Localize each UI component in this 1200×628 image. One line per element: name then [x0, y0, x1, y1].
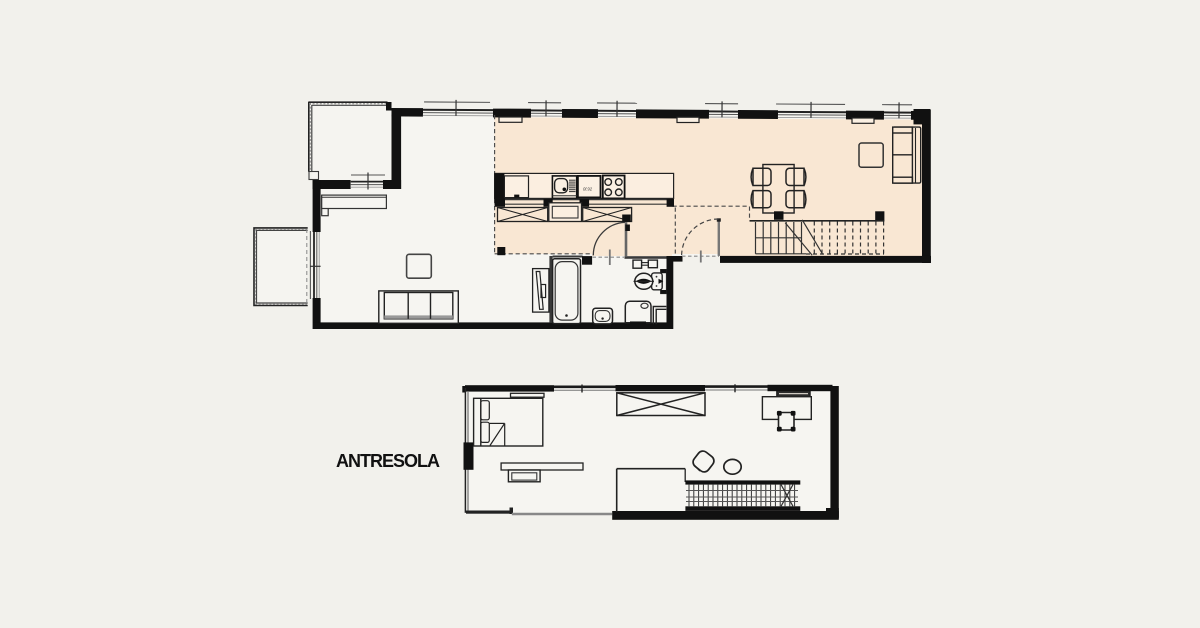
svg-text:0l.92: 0l.92	[583, 187, 593, 192]
svg-text:ANTRESOLA: ANTRESOLA	[336, 451, 440, 471]
